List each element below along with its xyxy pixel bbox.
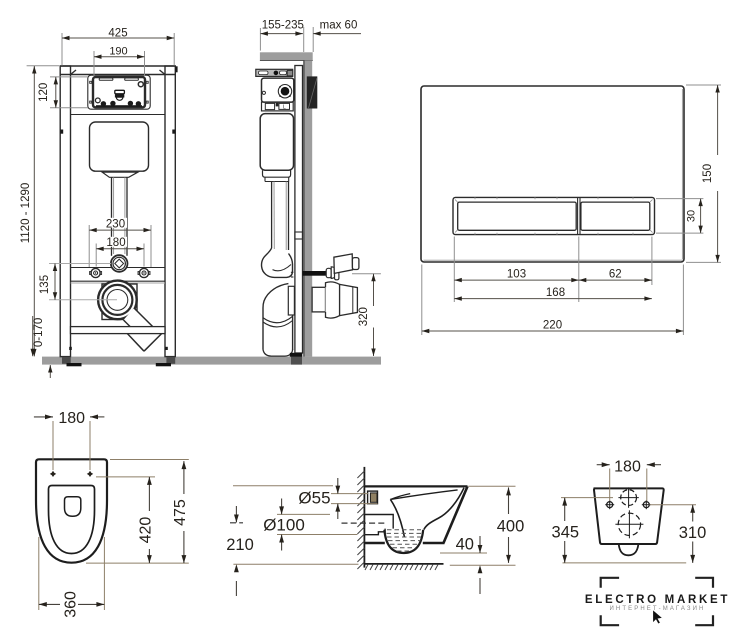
svg-text:max 60: max 60 xyxy=(320,20,358,32)
svg-text:168: 168 xyxy=(546,287,565,299)
svg-text:360: 360 xyxy=(62,591,79,618)
svg-text:320: 320 xyxy=(358,307,370,326)
svg-text:120: 120 xyxy=(38,83,50,102)
svg-text:62: 62 xyxy=(609,269,622,281)
svg-text:0-170: 0-170 xyxy=(33,318,45,347)
svg-text:190: 190 xyxy=(109,45,127,57)
svg-text:150: 150 xyxy=(702,164,714,183)
svg-text:40: 40 xyxy=(456,536,474,554)
svg-text:155-235: 155-235 xyxy=(262,20,304,32)
svg-text:180: 180 xyxy=(58,410,85,427)
svg-text:L: L xyxy=(283,105,286,111)
svg-text:400: 400 xyxy=(497,518,525,536)
svg-text:210: 210 xyxy=(226,536,254,554)
svg-text:1120 - 1290: 1120 - 1290 xyxy=(20,183,32,244)
svg-text:345: 345 xyxy=(552,524,580,542)
svg-text:30: 30 xyxy=(685,210,697,222)
svg-text:180: 180 xyxy=(106,237,125,249)
svg-text:475: 475 xyxy=(172,499,189,526)
svg-text:ELECTRO MARKET: ELECTRO MARKET xyxy=(585,594,730,606)
svg-text:220: 220 xyxy=(543,319,562,331)
svg-text:180: 180 xyxy=(614,459,641,476)
svg-text:Ø100: Ø100 xyxy=(263,516,305,535)
svg-text:135: 135 xyxy=(39,275,51,294)
svg-text:103: 103 xyxy=(507,269,526,281)
svg-text:310: 310 xyxy=(679,524,707,542)
svg-text:420: 420 xyxy=(137,517,154,544)
svg-text:Ø55: Ø55 xyxy=(298,489,330,508)
svg-text:230: 230 xyxy=(106,218,125,230)
svg-text:425: 425 xyxy=(108,28,127,40)
svg-text:ИНТЕРНЕТ-МАГАЗИН: ИНТЕРНЕТ-МАГАЗИН xyxy=(610,606,706,612)
